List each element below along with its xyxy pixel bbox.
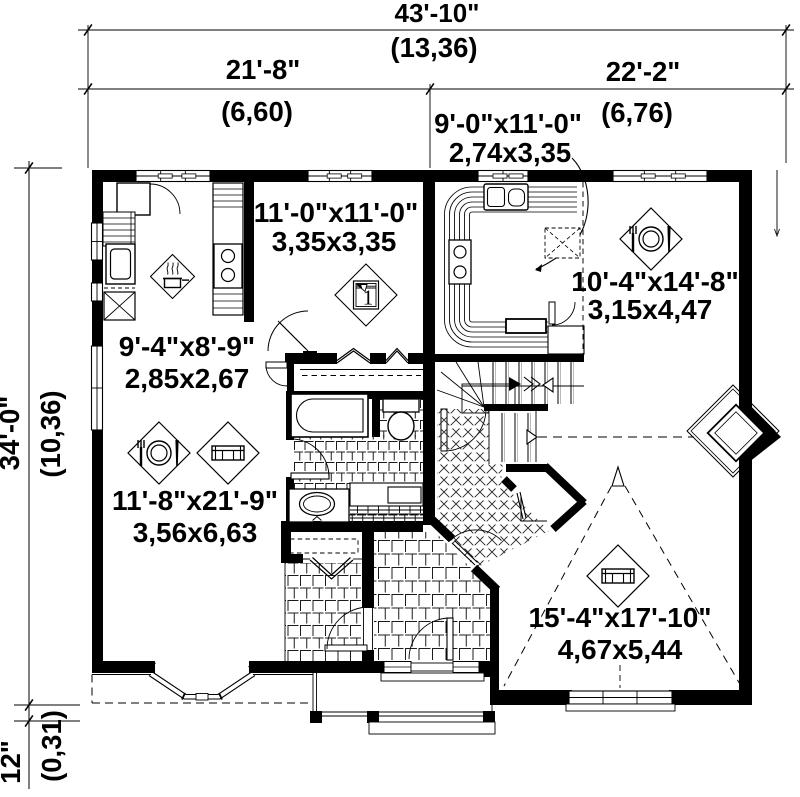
svg-text:11'-0"x11'-0": 11'-0"x11'-0" [254,197,418,228]
svg-text:(0,31): (0,31) [36,710,67,782]
svg-text:10'-4"x14'-8": 10'-4"x14'-8" [571,266,739,297]
svg-text:1: 1 [363,286,374,310]
svg-text:(10,36): (10,36) [35,390,66,477]
svg-text:21'-8": 21'-8" [226,54,301,85]
svg-text:12": 12" [0,740,26,784]
svg-text:4,67x5,44: 4,67x5,44 [558,634,683,665]
svg-text:9'-0"x11'-0": 9'-0"x11'-0" [434,108,582,139]
svg-text:3,35x3,35: 3,35x3,35 [272,226,397,257]
svg-text:2,85x2,67: 2,85x2,67 [125,363,250,394]
svg-text:(6,60): (6,60) [221,96,293,127]
svg-text:22'-2": 22'-2" [606,56,681,87]
svg-text:43'-10": 43'-10" [394,0,479,28]
svg-text:3,15x4,47: 3,15x4,47 [588,294,713,325]
svg-text:9'-4"x8'-9": 9'-4"x8'-9" [119,331,255,362]
svg-text:15'-4"x17'-10": 15'-4"x17'-10" [528,602,711,633]
svg-text:34'-0": 34'-0" [0,396,25,471]
svg-text:11'-8"x21'-9": 11'-8"x21'-9" [112,485,278,516]
svg-text:(6,76): (6,76) [601,97,673,128]
svg-text:(13,36): (13,36) [390,32,477,63]
svg-text:2,74x3,35: 2,74x3,35 [449,137,571,168]
svg-text:3,56x6,63: 3,56x6,63 [133,517,258,548]
